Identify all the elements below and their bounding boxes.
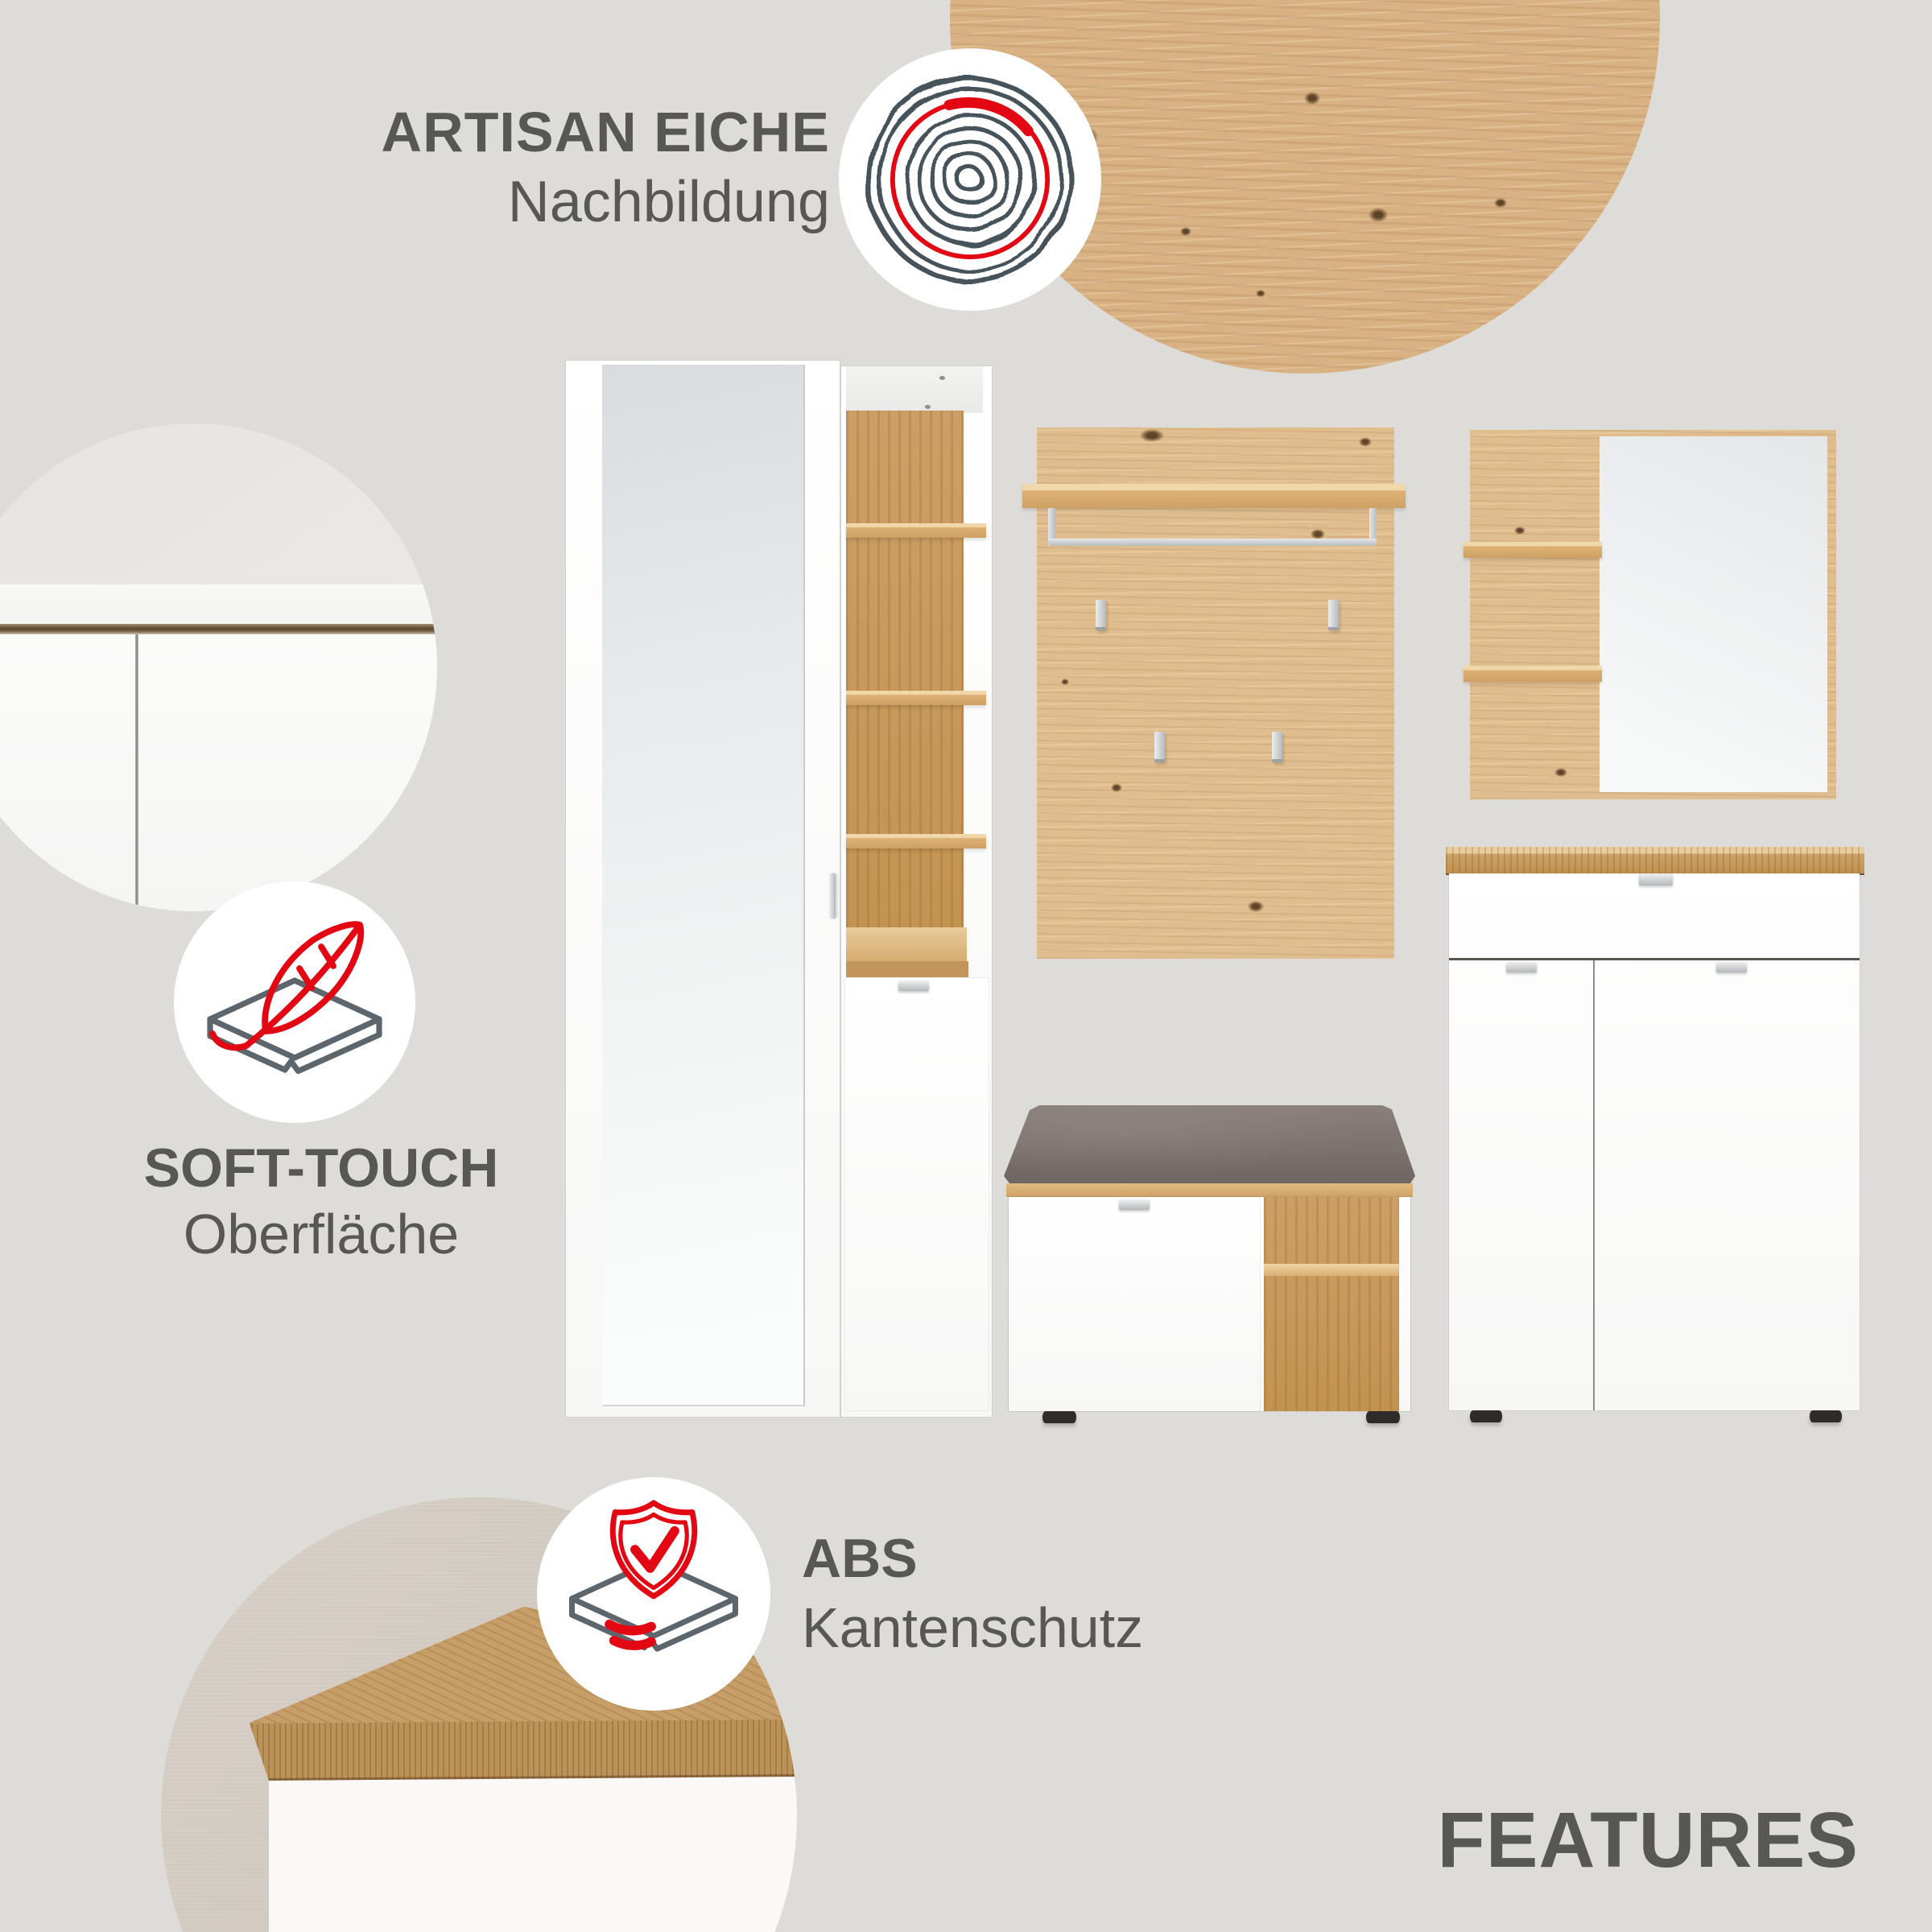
bench-shelf — [1264, 1264, 1399, 1276]
wardrobe-with-mirror — [566, 361, 840, 1417]
screw-dot — [925, 405, 931, 409]
shoe-cabinet-drawer — [1449, 873, 1860, 960]
coat-rail — [1048, 508, 1377, 546]
wood-knot — [1359, 437, 1372, 447]
bench — [1002, 1105, 1417, 1427]
door-handle — [898, 980, 929, 991]
wall-mirror-glass — [1600, 436, 1827, 792]
feature-artisan: ARTISAN EICHE Nachbildung — [382, 103, 830, 233]
coat-panel-shelf — [1022, 484, 1406, 508]
bench-side-panel — [1399, 1197, 1410, 1411]
bench-open-compartment — [1264, 1197, 1399, 1411]
coat-hook — [1272, 732, 1282, 762]
wood-knot — [1304, 92, 1320, 105]
coat-rack-panel — [1037, 427, 1394, 959]
bench-foot — [1366, 1411, 1400, 1423]
drawer-handle — [1639, 873, 1673, 885]
feature-title: ARTISAN EICHE — [382, 103, 830, 163]
soft-touch-badge — [174, 881, 415, 1123]
mirror-shelf — [1463, 666, 1602, 682]
wood-knot — [1514, 526, 1525, 535]
feature-subtitle: Oberfläche — [144, 1205, 499, 1265]
shield-check-icon — [537, 1477, 770, 1711]
door-handle — [1506, 962, 1537, 972]
door-handle — [1716, 962, 1747, 972]
screw-dot — [939, 376, 945, 380]
shoe-cabinet-body — [1449, 873, 1860, 1410]
shelf — [846, 691, 986, 705]
wood-knot — [1494, 198, 1507, 208]
feature-soft-touch: SOFT-TOUCH Oberfläche — [144, 1140, 499, 1265]
tree-rings-icon — [839, 48, 1101, 311]
wardrobe-handle — [829, 873, 836, 919]
cabinet-top-edge — [0, 624, 437, 634]
bench-foot — [1042, 1411, 1076, 1423]
wood-knot — [1554, 768, 1567, 777]
cabinet-foot — [1810, 1410, 1842, 1422]
bench-cushion — [1002, 1105, 1417, 1184]
shelf — [846, 834, 986, 848]
feature-title: SOFT-TOUCH — [144, 1140, 499, 1197]
bench-body — [1009, 1197, 1410, 1411]
shelf — [846, 523, 986, 538]
wood-knot — [1061, 679, 1069, 685]
cabinet-foot — [1470, 1410, 1502, 1422]
feature-sheet: ARTISAN EICHE Nachbildung SOFT-TOUCH Obe… — [0, 0, 1932, 1932]
wood-knot — [1256, 290, 1265, 297]
shoe-cabinet-doors — [1449, 960, 1860, 1410]
door-gap — [1593, 960, 1595, 1410]
feather-icon — [174, 881, 415, 1123]
shelf-unit-bottom-shelf-edge — [846, 961, 968, 977]
shoe-cabinet-wood-top — [1446, 847, 1864, 875]
wood-knot — [1368, 208, 1388, 222]
bench-door — [1009, 1197, 1260, 1411]
wood-knot — [1140, 429, 1164, 442]
mirror-shelf — [1463, 542, 1602, 558]
cabinet-top-surface — [0, 584, 437, 624]
wood-knot — [1248, 901, 1264, 912]
feature-subtitle: Nachbildung — [382, 172, 830, 233]
coat-hook — [1096, 600, 1106, 630]
shoe-cabinet — [1446, 847, 1864, 1423]
cabinet-doors — [0, 634, 437, 911]
artisan-badge — [839, 48, 1101, 311]
rail-bar — [1048, 539, 1377, 546]
abs-badge — [537, 1477, 770, 1711]
wood-knot — [1111, 783, 1122, 792]
cabinet-detail-photo — [0, 423, 437, 911]
feature-title: ABS — [802, 1530, 1143, 1587]
wood-knot — [1180, 227, 1191, 236]
wardrobe-mirror — [602, 365, 805, 1406]
feature-subtitle: Kantenschutz — [802, 1599, 1143, 1658]
bench-wood-top — [1006, 1183, 1413, 1197]
feature-abs: ABS Kantenschutz — [802, 1530, 1143, 1658]
shelf-unit-door — [845, 978, 989, 1410]
shelf-unit — [841, 366, 992, 1417]
door-handle — [1119, 1199, 1150, 1210]
shelf-unit-ceiling — [846, 366, 983, 413]
coat-hook — [1154, 732, 1165, 762]
coat-hook — [1328, 600, 1339, 630]
page-title: FEATURES — [1437, 1795, 1859, 1885]
cabinet-door-gap — [135, 634, 138, 911]
wall-mirror-panel — [1470, 430, 1836, 799]
shelf-unit-bottom-shelf — [846, 927, 967, 961]
